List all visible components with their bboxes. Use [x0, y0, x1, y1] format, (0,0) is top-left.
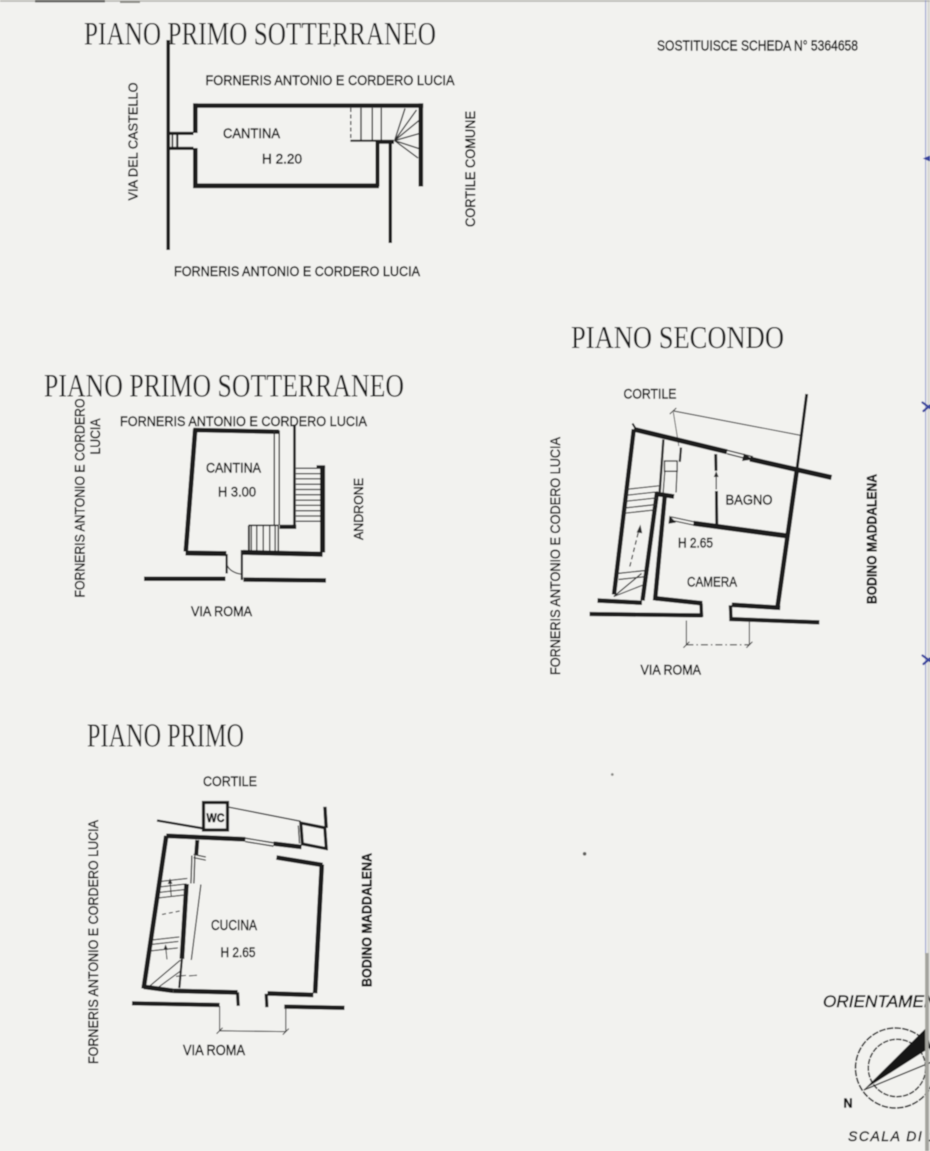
svg-text:PIANO SECONDO: PIANO SECONDO — [571, 320, 784, 355]
svg-text:CORTILE: CORTILE — [624, 386, 677, 402]
svg-text:CANTINA: CANTINA — [206, 460, 262, 476]
svg-text:CAMERA: CAMERA — [687, 574, 738, 590]
svg-text:VIA ROMA: VIA ROMA — [191, 603, 253, 619]
svg-text:H 2.20: H 2.20 — [262, 151, 302, 167]
svg-text:BODINO MADDALENA: BODINO MADDALENA — [864, 474, 880, 604]
svg-text:LUCIA: LUCIA — [87, 418, 103, 455]
svg-text:CANTINA: CANTINA — [223, 125, 281, 141]
svg-text:FORNERIS ANTONIO E CORDERO: FORNERIS ANTONIO E CORDERO — [72, 398, 88, 597]
svg-text:VIA ROMA: VIA ROMA — [183, 1043, 245, 1059]
svg-text:H 2.65: H 2.65 — [678, 536, 713, 551]
svg-text:SOSTITUISCE SCHEDA N° 5364658: SOSTITUISCE SCHEDA N° 5364658 — [657, 39, 858, 55]
svg-text:CORTILE: CORTILE — [203, 773, 257, 789]
svg-text:BAGNO: BAGNO — [726, 492, 773, 508]
svg-text:FORNERIS ANTONIO E CORDERO LUC: FORNERIS ANTONIO E CORDERO LUCIA — [120, 414, 367, 429]
svg-text:SCALA DI 1:: SCALA DI 1: — [848, 1128, 930, 1144]
svg-text:VIA ROMA: VIA ROMA — [641, 662, 702, 678]
svg-text:FORNERIS ANTONIO E CORDERO LUC: FORNERIS ANTONIO E CORDERO LUCIA — [85, 819, 101, 1064]
svg-text:PIANO PRIMO SOTTERRANEO: PIANO PRIMO SOTTERRANEO — [44, 369, 404, 405]
svg-text:ANDRONE: ANDRONE — [351, 478, 366, 540]
svg-text:BODINO MADDALENA: BODINO MADDALENA — [360, 853, 375, 987]
svg-text:WC: WC — [207, 811, 225, 825]
svg-text:FORNERIS ANTONIO E CODERO LUCI: FORNERIS ANTONIO E CODERO LUCIA — [547, 436, 563, 675]
svg-text:PIANO PRIMO: PIANO PRIMO — [87, 718, 244, 755]
svg-text:VIA DEL CASTELLO: VIA DEL CASTELLO — [126, 83, 141, 201]
svg-text:N: N — [844, 1097, 853, 1111]
svg-text:ORIENTAMENTO: ORIENTAMENTO — [823, 993, 930, 1011]
svg-text:CORTILE COMUNE: CORTILE COMUNE — [463, 111, 478, 227]
svg-text:H 3.00: H 3.00 — [218, 484, 256, 500]
svg-text:PIANO PRIMO SOTTERRANEO: PIANO PRIMO SOTTERRANEO — [84, 17, 436, 53]
svg-text:H 2.65: H 2.65 — [221, 945, 256, 960]
svg-text:FORNERIS ANTONIO E CORDERO LUC: FORNERIS ANTONIO E CORDERO LUCIA — [206, 72, 456, 88]
svg-text:FORNERIS ANTONIO E CORDERO LUC: FORNERIS ANTONIO E CORDERO LUCIA — [174, 263, 421, 279]
svg-text:CUCINA: CUCINA — [211, 918, 257, 934]
